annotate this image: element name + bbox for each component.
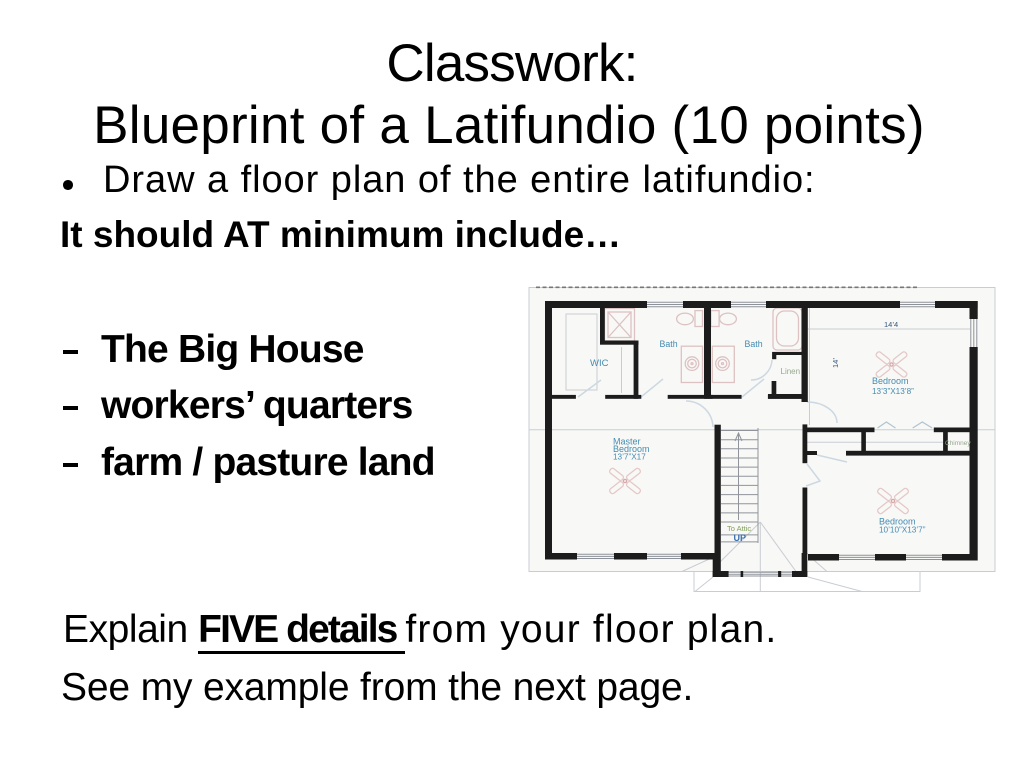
svg-text:13’7”X17: 13’7”X17: [613, 453, 646, 462]
svg-text:14’4: 14’4: [884, 320, 898, 329]
svg-text:To Attic: To Attic: [727, 524, 751, 533]
svg-text:14’: 14’: [831, 358, 840, 368]
svg-text:WIC: WIC: [590, 358, 609, 369]
svg-text:Bath: Bath: [660, 339, 678, 349]
svg-text:Chimney: Chimney: [945, 440, 971, 447]
svg-text:Bedroom: Bedroom: [872, 376, 909, 386]
svg-text:Linen: Linen: [781, 367, 801, 376]
svg-text:UP: UP: [734, 533, 747, 543]
svg-text:13’3”X13’8”: 13’3”X13’8”: [872, 387, 914, 396]
svg-text:Bath: Bath: [745, 339, 763, 349]
svg-text:10’10”X13’7”: 10’10”X13’7”: [879, 526, 926, 535]
